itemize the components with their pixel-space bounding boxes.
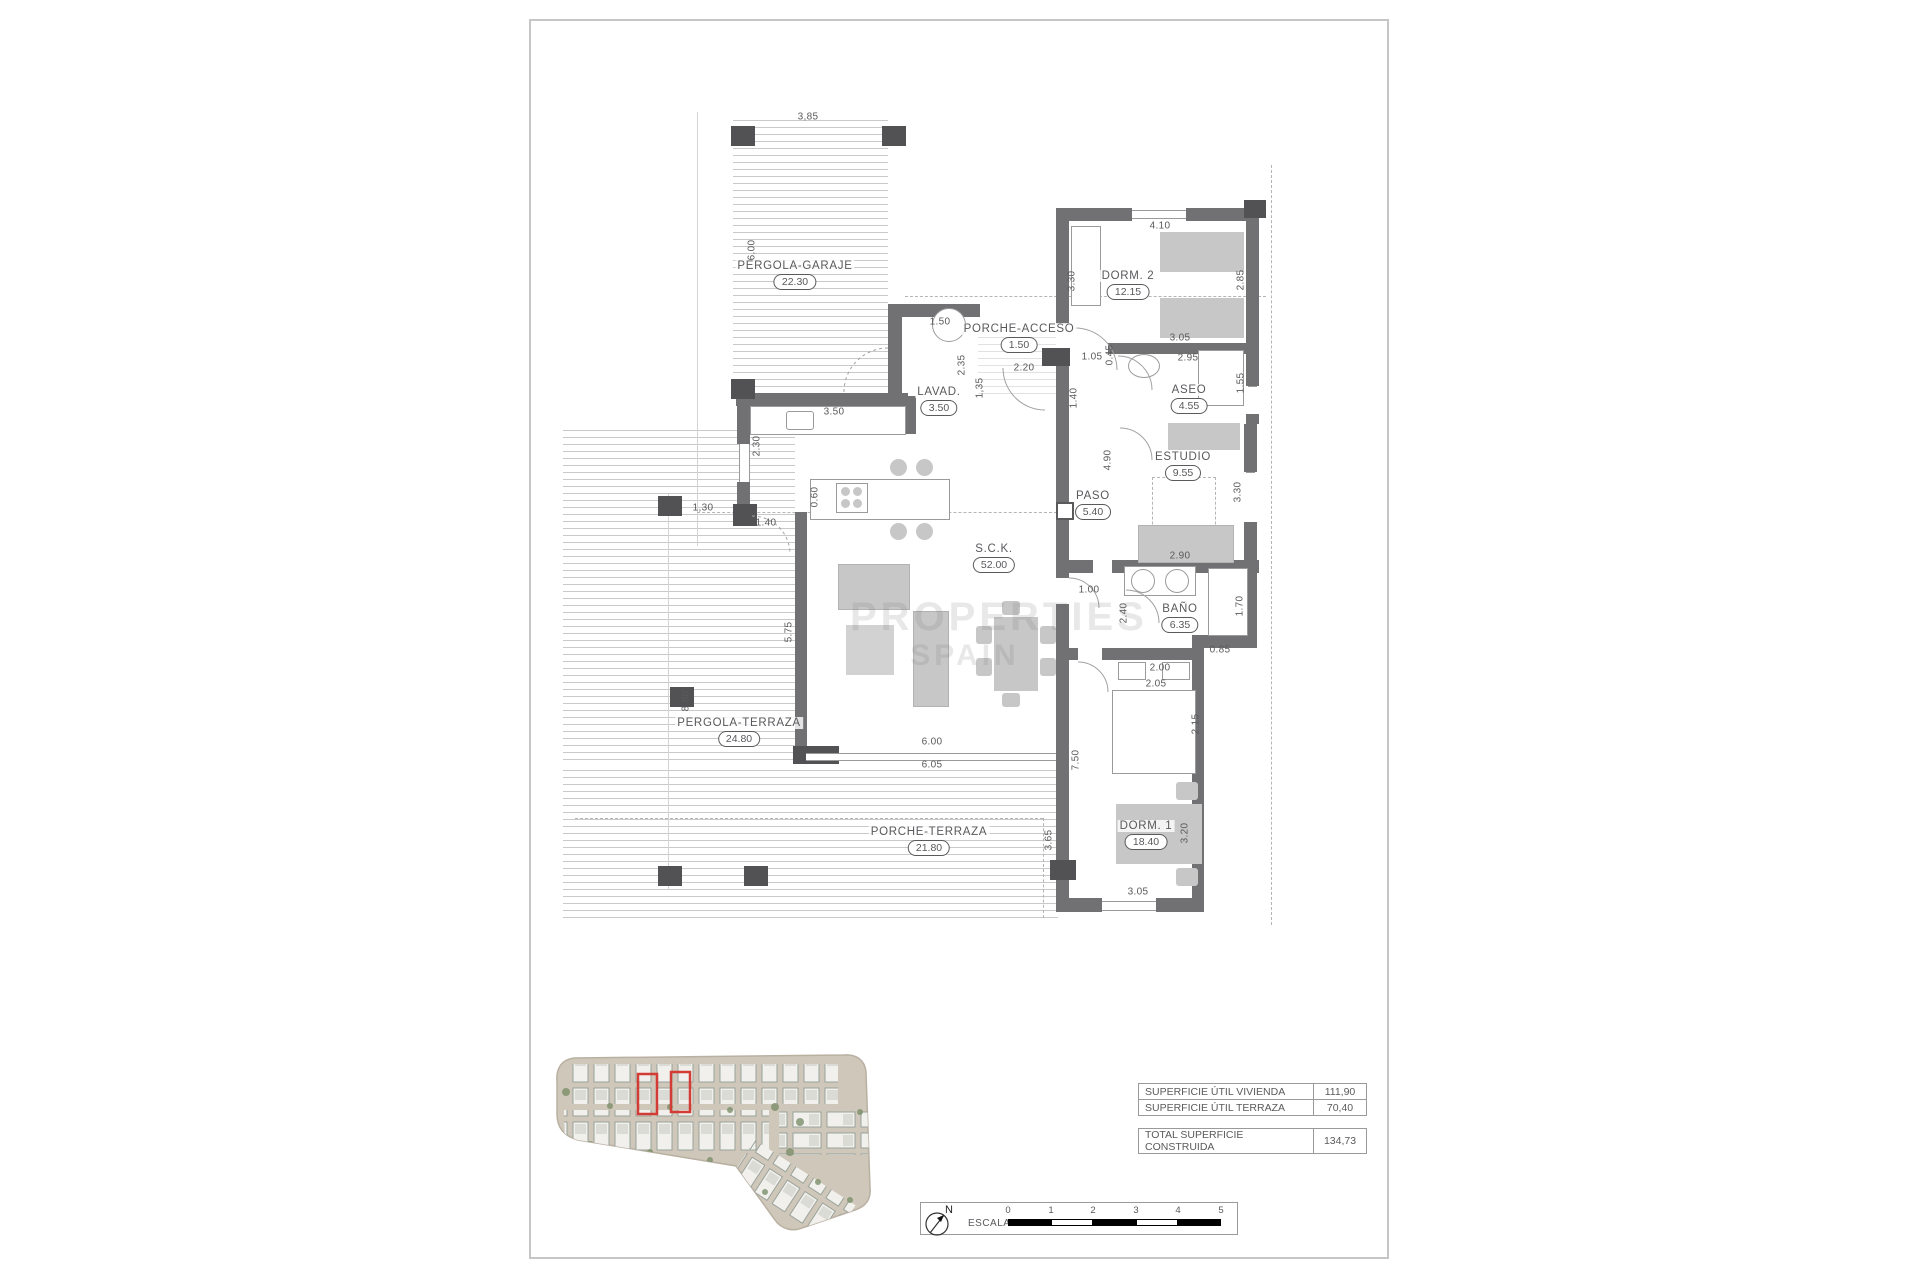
villa-row — [570, 1064, 838, 1104]
dim-label: 7.50 — [1071, 750, 1082, 771]
dim-label: 4.90 — [1103, 450, 1114, 471]
dim-label: 1,30 — [693, 503, 714, 514]
column — [744, 866, 768, 886]
scale-tick: 2 — [1090, 1205, 1095, 1216]
wall — [1156, 898, 1204, 912]
dim-label: 0.85 — [1210, 645, 1231, 656]
room-label-estudio: ESTUDIO 9.55 — [1153, 451, 1213, 481]
column — [658, 866, 682, 886]
surface-table: SUPERFICIE ÚTIL VIVIENDA 111,90 SUPERFIC… — [1138, 1083, 1367, 1116]
bed — [1160, 232, 1244, 272]
column — [1244, 200, 1266, 218]
wall — [1102, 648, 1192, 660]
scale-segment — [1136, 1219, 1178, 1226]
stool — [916, 459, 933, 476]
scale-box: N ESCALA : 0 1 2 3 4 5 — [920, 1202, 1238, 1235]
dim-label: 2.00 — [1150, 663, 1171, 674]
dim-label: 3,85 — [798, 112, 819, 123]
scale-tick: 3 — [1133, 1205, 1138, 1216]
column — [1050, 860, 1076, 880]
scale-tick: 5 — [1218, 1205, 1223, 1216]
stool — [916, 523, 933, 540]
paso-pillar — [1056, 502, 1074, 520]
dim-label: 0.60 — [810, 487, 821, 508]
column — [658, 496, 682, 516]
column — [731, 126, 755, 146]
wall — [737, 406, 750, 444]
dim-label: 6.00 — [747, 240, 758, 261]
column — [882, 126, 906, 146]
scale-segment — [1093, 1219, 1136, 1226]
total-surface-table: TOTAL SUPERFICIE CONSTRUIDA 134,73 — [1138, 1128, 1367, 1154]
desk — [1168, 423, 1240, 450]
window — [1102, 901, 1156, 911]
pergola-terraza-hatch — [563, 424, 795, 764]
wall — [1246, 354, 1259, 386]
dim-label: 6.00 — [922, 737, 943, 748]
dim-label: 2.40 — [1119, 603, 1130, 624]
scale-tick: 4 — [1175, 1205, 1180, 1216]
table-row: SUPERFICIE ÚTIL VIVIENDA 111,90 — [1139, 1084, 1367, 1100]
room-label-sck: S.C.K. 52.00 — [973, 543, 1015, 573]
dim-label: 1.40 — [756, 518, 777, 529]
scale-tick: 0 — [1005, 1205, 1010, 1216]
scale-tick: 1 — [1048, 1205, 1053, 1216]
room-label-pergola-terraza: PERGOLA-TERRAZA 24.80 — [675, 717, 803, 747]
surface-label: SUPERFICIE ÚTIL TERRAZA — [1139, 1100, 1314, 1116]
north-label: N — [945, 1204, 953, 1216]
surface-value: 70,40 — [1314, 1100, 1367, 1116]
kitchen-sink — [786, 411, 814, 430]
dim-label: 2.05 — [1146, 679, 1167, 690]
scale-segment — [1178, 1219, 1221, 1226]
chair — [1002, 693, 1020, 707]
north-arrow-icon — [923, 1207, 963, 1237]
terrace-edge-line — [668, 494, 669, 890]
watermark: PROPERTIES SPAIN — [850, 595, 1080, 672]
wall — [1246, 414, 1259, 424]
villa-row — [564, 1110, 769, 1152]
watermark-line1: PROPERTIES — [850, 595, 1080, 639]
room-label-porche-acceso: PORCHE-ACCESO 1.50 — [962, 323, 1077, 353]
surface-label: SUPERFICIE ÚTIL VIVIENDA — [1139, 1084, 1314, 1100]
stool — [890, 459, 907, 476]
room-label-bano: BAÑO 6.35 — [1160, 603, 1199, 633]
room-label-lavadero: LAVAD. 3.50 — [915, 386, 962, 416]
wall — [888, 304, 902, 406]
plot-line — [697, 112, 698, 546]
dim-label: 3.65 — [1044, 830, 1055, 851]
porch-dashed-h — [575, 818, 1043, 819]
plan-sheet-page: { "plan": { "rooms": [ {"name":"PERGOLA-… — [0, 0, 1920, 1280]
wall — [1069, 560, 1093, 573]
hob — [836, 483, 868, 513]
column — [731, 379, 755, 399]
bath-sink — [1131, 569, 1155, 593]
room-label-porche-terraza: PORCHE-TERRAZA 21.80 — [869, 826, 990, 856]
guest-bed — [1112, 690, 1196, 774]
dim-label: 1.55 — [1236, 373, 1247, 394]
dim-label: 5.75 — [784, 622, 795, 643]
dim-label: 1.50 — [930, 317, 951, 328]
dim-label: 2.90 — [1170, 551, 1191, 562]
window — [1246, 472, 1255, 524]
dim-label: 1.05 — [1082, 352, 1103, 363]
dim-label: 2.15 — [1191, 714, 1202, 735]
cabinet — [1118, 662, 1146, 680]
dim-label: 2.85 — [1236, 270, 1247, 291]
dim-label: 2.35 — [957, 355, 968, 376]
dim-label: 3.20 — [1180, 823, 1191, 844]
dim-label: 0.45 — [1105, 345, 1116, 366]
roof-overhang-dashed — [1271, 165, 1272, 925]
stool — [890, 523, 907, 540]
aseo-sink — [1128, 354, 1160, 378]
scale-segment — [1051, 1219, 1093, 1226]
dim-label: 3.05 — [1128, 887, 1149, 898]
dim-label: 3.50 — [824, 407, 845, 418]
table-row: TOTAL SUPERFICIE CONSTRUIDA 134,73 — [1139, 1129, 1367, 1154]
wall — [1246, 208, 1259, 345]
dim-label: 2.20 — [1014, 363, 1035, 374]
dim-label: 8.80 — [681, 691, 692, 712]
hob-burner — [841, 487, 850, 496]
dim-label: 2.95 — [1178, 353, 1199, 364]
wall — [1056, 898, 1102, 912]
bath-sink — [1165, 569, 1189, 593]
kitchen-island — [810, 479, 950, 520]
dim-label: 4.10 — [1150, 221, 1171, 232]
table-row: SUPERFICIE ÚTIL TERRAZA 70,40 — [1139, 1100, 1367, 1116]
room-label-pergola-garaje: PERGOLA-GARAJE 22.30 — [735, 260, 854, 290]
site-plan — [550, 1052, 885, 1234]
dim-label: 3.30 — [1067, 271, 1078, 292]
surface-value: 134,73 — [1314, 1129, 1367, 1154]
dim-label: 3.30 — [1233, 482, 1244, 503]
watermark-line2: SPAIN — [850, 639, 1080, 672]
dim-label: 1.00 — [1079, 585, 1100, 596]
window — [739, 444, 750, 482]
wall — [1056, 366, 1069, 578]
dim-label: 2.30 — [752, 436, 763, 457]
dim-label: 1,35 — [975, 378, 986, 399]
nightstand — [1176, 868, 1198, 886]
window — [1248, 386, 1257, 416]
dim-label: 1.70 — [1235, 596, 1246, 617]
room-label-dorm1: DORM. 1 18.40 — [1118, 820, 1175, 850]
wall — [736, 393, 908, 406]
room-label-aseo: ASEO 4.55 — [1170, 384, 1209, 414]
window — [1132, 210, 1186, 219]
wall — [795, 512, 807, 752]
column — [733, 504, 757, 526]
dim-label: 1.40 — [1069, 388, 1080, 409]
surface-label: TOTAL SUPERFICIE CONSTRUIDA — [1139, 1129, 1314, 1154]
wall — [1056, 208, 1069, 324]
room-label-paso: PASO 5.40 — [1074, 490, 1112, 520]
dim-label: 3.05 — [1170, 333, 1191, 344]
wall — [1244, 424, 1257, 472]
wardrobe — [1071, 226, 1101, 306]
nightstand — [1176, 782, 1198, 800]
surface-value: 111,90 — [1314, 1084, 1367, 1100]
scale-segment — [1008, 1219, 1051, 1226]
room-label-dorm2: DORM. 2 12.15 — [1100, 270, 1157, 300]
dim-label: 6.05 — [922, 760, 943, 771]
wall — [1056, 208, 1132, 221]
